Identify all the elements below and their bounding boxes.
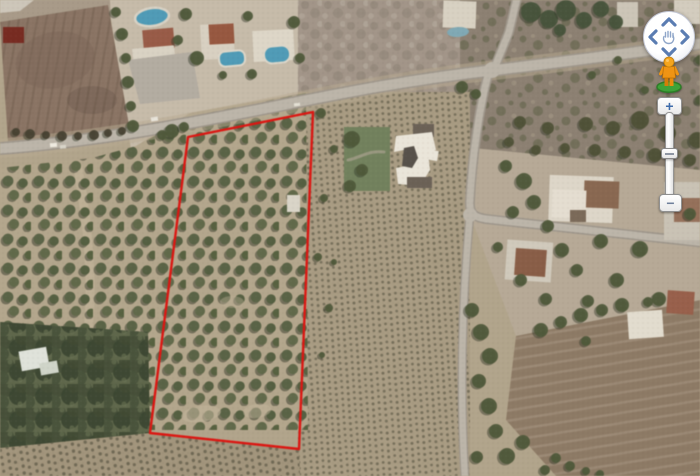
pan-up-button[interactable] — [660, 15, 678, 27]
pan-right-button[interactable] — [680, 28, 692, 46]
chevron-up-icon — [661, 16, 677, 27]
satellite-imagery — [0, 0, 700, 476]
photo-grain — [0, 0, 700, 476]
pan-left-button[interactable] — [646, 28, 658, 46]
pegman-streetview[interactable] — [654, 55, 684, 93]
chevron-left-icon — [647, 29, 658, 45]
zoom-out-button[interactable]: − — [659, 194, 682, 212]
zoom-slider-thumb[interactable] — [661, 148, 678, 159]
hand-icon — [659, 27, 679, 47]
chevron-right-icon — [681, 29, 692, 45]
pan-hand-icon[interactable] — [659, 27, 679, 47]
map-viewport[interactable]: + − — [0, 0, 700, 476]
pegman-icon — [654, 55, 684, 93]
